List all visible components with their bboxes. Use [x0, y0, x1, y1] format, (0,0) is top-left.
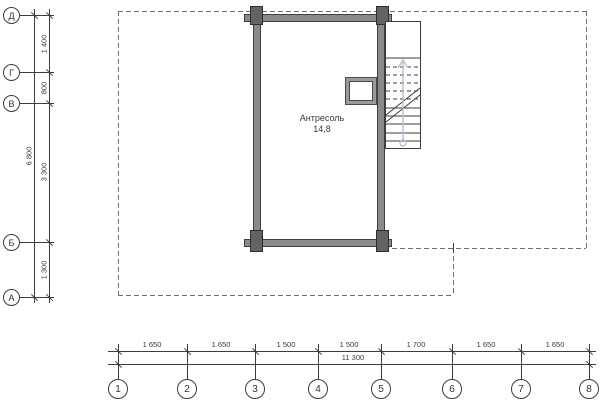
axis-label: 3	[252, 384, 258, 395]
axis-label: 1	[115, 384, 121, 395]
bottom-axis-marker-3: 3	[245, 379, 265, 399]
axis-label: В	[8, 99, 14, 109]
room-area-label: 14,8	[300, 124, 344, 135]
axis-label: А	[8, 293, 14, 303]
axis-label: 5	[378, 384, 384, 395]
left-axis-marker-5: А	[3, 289, 20, 306]
left-axis-marker-2: Г	[3, 64, 20, 81]
bottom-axis-marker-2: 2	[177, 379, 197, 399]
axis-label: Д	[8, 11, 14, 21]
dim-label: 3 300	[40, 163, 49, 182]
axis-label: 8	[586, 384, 592, 395]
axis-label: 2	[184, 384, 190, 395]
bottom-axis-marker-8: 8	[579, 379, 599, 399]
dim-label: 1 650	[546, 340, 565, 349]
dim-label: 1 650	[212, 340, 231, 349]
left-axis-marker-1: Д	[3, 7, 20, 24]
roof-outline-right-horizontal	[392, 248, 586, 249]
leader-line	[589, 344, 590, 379]
wall-right	[377, 14, 385, 247]
bottom-axis-marker-7: 7	[511, 379, 531, 399]
dim-label: 1 300	[40, 261, 49, 280]
leader-line	[255, 344, 256, 379]
roof-outline-right	[586, 11, 587, 248]
dim-total-label: 6 800	[25, 147, 34, 166]
left-dim-line-segments	[49, 9, 50, 303]
room-label: Антресоль 14,8	[300, 113, 344, 135]
dim-label: 1 500	[277, 340, 296, 349]
column-bottom-right	[376, 230, 389, 252]
dim-total-label: 11 300	[342, 353, 364, 362]
wall-left	[253, 14, 261, 247]
dim-label: 1 400	[40, 35, 49, 54]
bottom-axis-marker-6: 6	[442, 379, 462, 399]
floor-plan-canvas: Д Г В Б А 1 400 800 3 300 1 300 6 800	[0, 0, 600, 402]
staircase-drawing	[386, 22, 420, 148]
dim-label: 1 650	[477, 340, 496, 349]
axis-label: 4	[315, 384, 321, 395]
column-bottom-left	[250, 230, 263, 252]
bottom-axis-marker-1: 1	[108, 379, 128, 399]
wall-bottom	[244, 239, 392, 247]
left-axis-marker-4: Б	[3, 234, 20, 251]
dim-label: 1 500	[340, 340, 359, 349]
leader-line	[118, 344, 119, 379]
axis-label: Г	[9, 68, 14, 78]
dim-label: 1 700	[407, 340, 426, 349]
dim-label: 1 650	[143, 340, 162, 349]
wall-top	[244, 14, 392, 22]
bottom-dim-line-total	[108, 364, 596, 365]
bottom-axis-marker-5: 5	[371, 379, 391, 399]
dim-label: 800	[40, 82, 49, 95]
column-top-left	[250, 6, 263, 25]
roof-outline-left	[118, 11, 119, 295]
leader-line	[452, 344, 453, 379]
roof-outline-top	[118, 11, 586, 12]
leader-line	[318, 344, 319, 379]
axis-label: 6	[449, 384, 455, 395]
left-axis-marker-3: В	[3, 95, 20, 112]
staircase	[385, 21, 421, 149]
roof-outline-step-vertical	[453, 248, 454, 295]
axis-label: Б	[9, 238, 15, 248]
leader-line	[521, 344, 522, 379]
room-name-label: Антресоль	[300, 113, 344, 124]
leader-line	[187, 344, 188, 379]
chimney-shaft-inner	[349, 81, 373, 101]
roof-outline-bottom	[118, 295, 453, 296]
axis-label: 7	[518, 384, 524, 395]
outline-corner-tick	[453, 243, 454, 253]
chimney-shaft	[345, 77, 377, 105]
left-dim-line-total	[34, 9, 35, 303]
leader-line	[381, 344, 382, 379]
bottom-axis-marker-4: 4	[308, 379, 328, 399]
